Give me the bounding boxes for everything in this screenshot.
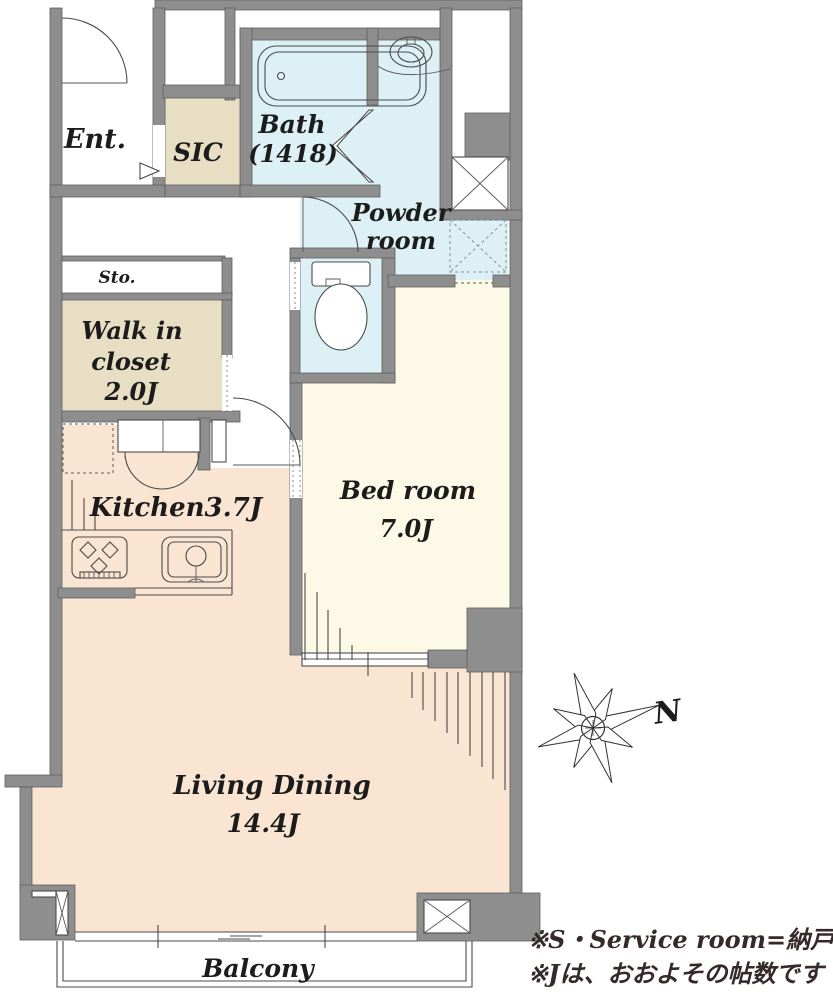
bedroom-size-label: 7.0J [379,514,434,543]
sic-label: SIC [173,138,223,167]
utility-shaft [452,8,510,114]
bath-label: Bath [257,110,325,139]
north-label: N [651,693,686,732]
room-storage [62,261,222,293]
kitchen-label: Kitchen3.7J [89,493,264,523]
compass-rose-icon: N [538,673,685,783]
bath-size-label: (1418) [248,139,338,168]
nook-column [212,420,226,462]
toilet-icon [312,262,370,350]
powder-label-2: room [366,226,436,255]
wic-label-3: 2.0J [103,377,159,406]
note-line-1: ※S・Service room=納戸 [528,925,833,954]
bedroom-door-opening [290,440,302,498]
living-label: Living Dining [172,771,371,801]
bedroom-label: Bed room [339,476,476,505]
note-line-2: ※Jは、おおよその帖数です [528,959,826,988]
wic-label-2: closet [91,347,171,376]
powder-label-1: Powder [351,198,453,227]
floor-plan-page: N Ent. SIC Bath (1418) Powder room Sto. … [0,0,833,1000]
floor-plan-canvas: N Ent. SIC Bath (1418) Powder room Sto. … [0,0,833,1000]
pipe-space-top [452,157,508,210]
closet-door-opening [222,355,232,411]
living-size-label: 14.4J [227,809,302,838]
ent-label: Ent. [63,124,126,155]
footnotes: ※S・Service room=納戸 ※Jは、おおよその帖数です [528,925,833,988]
meter-box [163,10,225,86]
balcony-label: Balcony [201,954,315,983]
pipe-space-bottom-right [424,900,470,933]
wic-label-1: Walk in [81,316,182,345]
storage-label: Sto. [98,268,135,288]
